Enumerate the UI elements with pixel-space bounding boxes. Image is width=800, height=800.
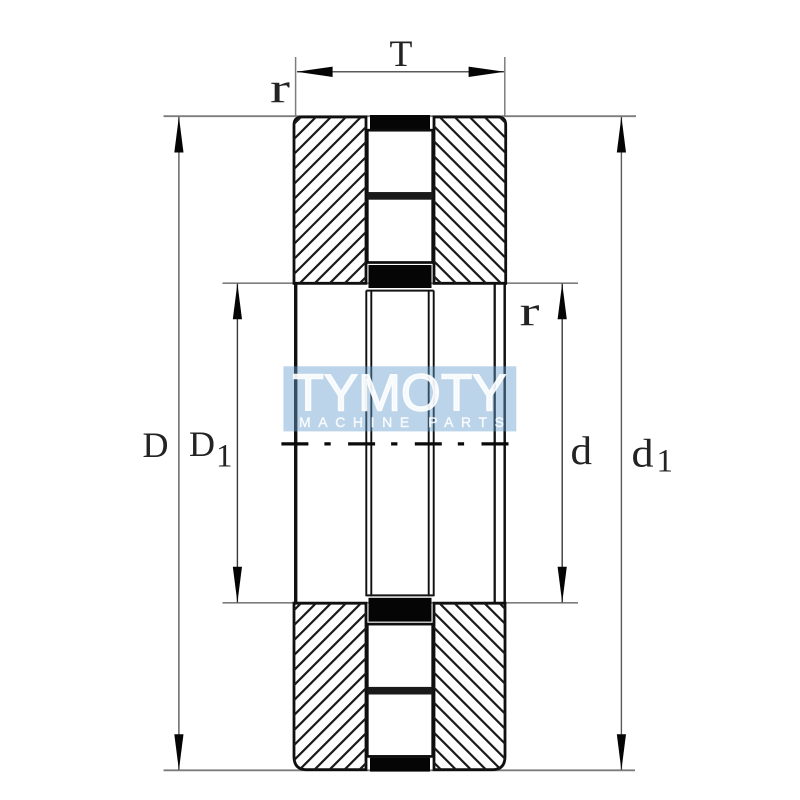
svg-text:1: 1 [216, 439, 233, 475]
svg-text:d: d [632, 431, 654, 476]
svg-text:TYMOTY: TYMOTY [293, 364, 507, 422]
svg-text:D: D [189, 424, 215, 464]
svg-text:D: D [143, 425, 169, 465]
svg-text:1: 1 [657, 444, 674, 480]
svg-text:r: r [520, 289, 540, 335]
svg-text:d: d [571, 428, 593, 473]
svg-text:T: T [390, 34, 413, 75]
svg-text:r: r [270, 66, 290, 112]
